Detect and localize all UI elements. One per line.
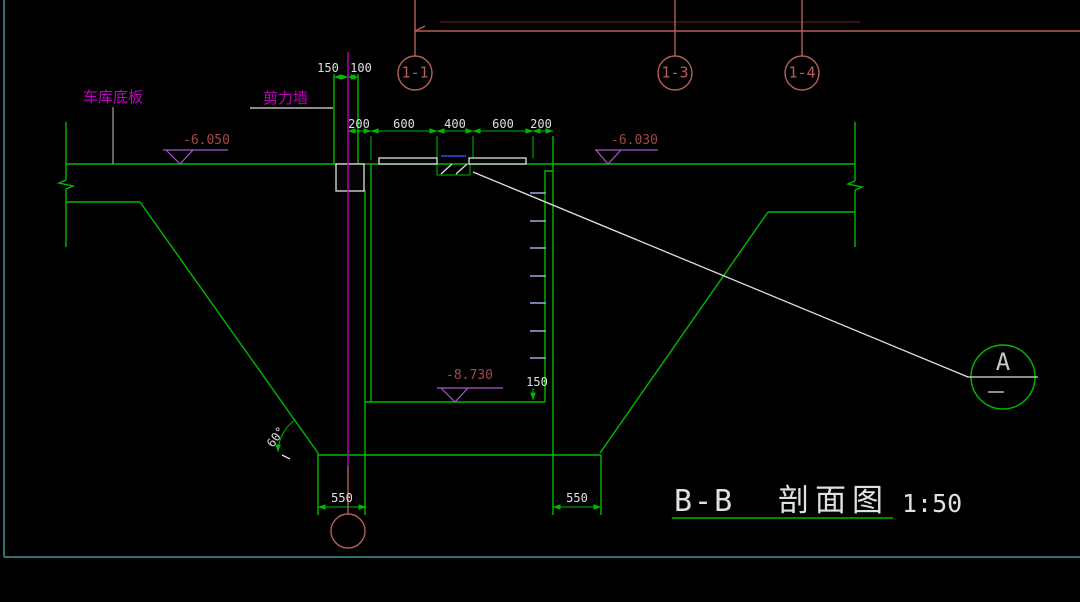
axis-label-1-3: 1-3 [661, 66, 688, 81]
dim-bottom-550-right: 550 [566, 492, 588, 504]
dim-pit-200a: 200 [348, 118, 370, 130]
dim-wall-100: 100 [350, 62, 372, 74]
dim-pit-600a: 600 [393, 118, 415, 130]
elevation-value-left: -6.050 [183, 134, 230, 147]
axis-label-1-4: 1-4 [788, 66, 815, 81]
dim-pit-600b: 600 [492, 118, 514, 130]
pit-cover-right [469, 158, 526, 164]
bottom-axis-bubble [331, 514, 365, 548]
detail-leader-line [473, 172, 968, 377]
elevation-markers [163, 150, 658, 402]
wall-base-block [336, 164, 364, 191]
title-section-type: 剖面图 [778, 486, 889, 517]
elevation-marker-left [163, 150, 228, 164]
viewport-border [4, 0, 1080, 557]
title-scale: 1:50 [902, 491, 962, 516]
title-section-name: B-B [674, 487, 734, 517]
pit-ladder-rungs [530, 193, 546, 358]
elevation-value-pit: -8.730 [446, 369, 493, 382]
dim-pit-400: 400 [444, 118, 466, 130]
dim-pit-200b: 200 [530, 118, 552, 130]
detail-letter: A [996, 350, 1010, 374]
pit-cover-left [379, 158, 437, 164]
left-break-line [59, 122, 73, 247]
structure-lines [59, 74, 862, 515]
garage-slab-label: 车库底板 [83, 90, 143, 105]
hatch-lines [441, 164, 467, 174]
axis-label-1-1: 1-1 [401, 66, 428, 81]
elevation-marker-pit [437, 388, 503, 402]
cad-canvas[interactable]: 1-1 1-3 1-4 车库底板 剪力墙 -6.050 -6.030 -8.73… [0, 0, 1080, 602]
pit-bottom [318, 402, 601, 515]
axis-grid-lines [398, 0, 1080, 90]
elevation-marker-right [595, 150, 658, 164]
dim-bottom-550-left: 550 [331, 492, 353, 504]
right-break-line [848, 122, 862, 247]
dim-wall-150: 150 [317, 62, 339, 74]
elevation-value-right: -6.030 [611, 134, 658, 147]
white-details [113, 107, 968, 459]
dim-pit-wall-150: 150 [526, 376, 548, 388]
shear-wall-label: 剪力墙 [263, 91, 308, 106]
